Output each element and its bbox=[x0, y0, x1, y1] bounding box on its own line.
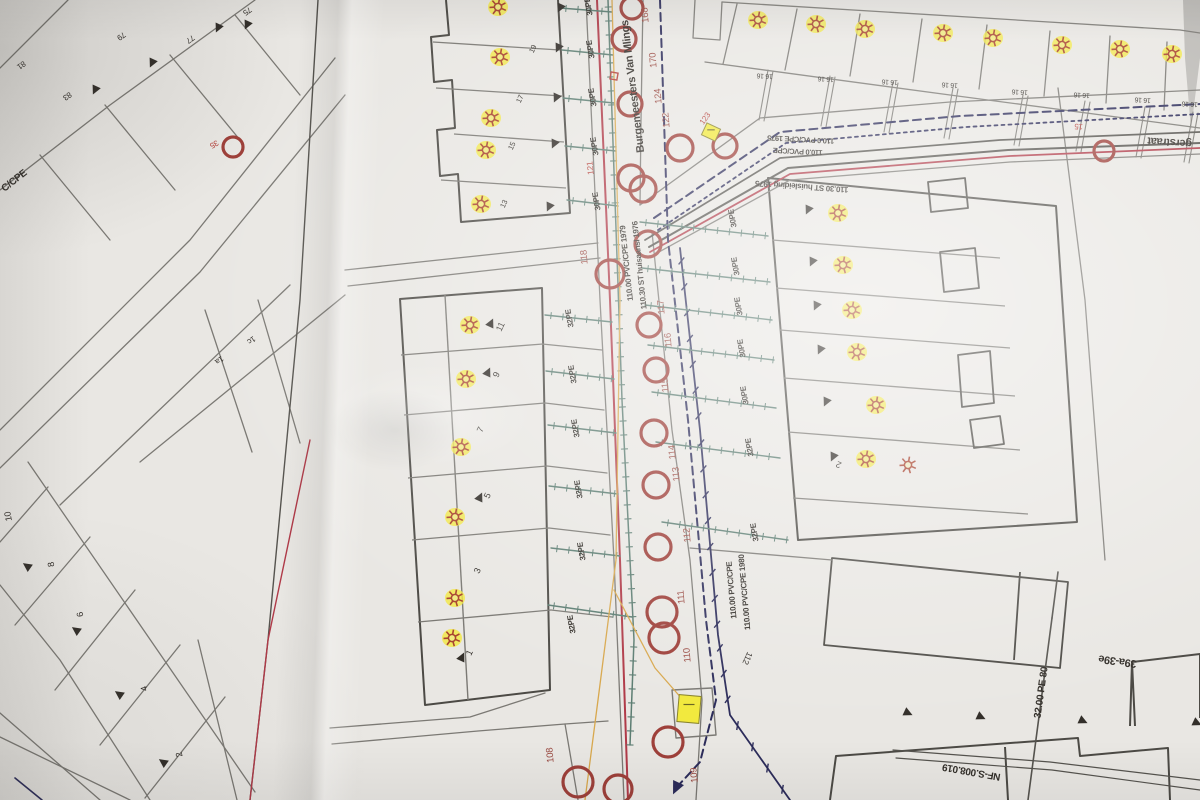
service-teal-tick bbox=[603, 51, 604, 58]
service-teal-tick bbox=[710, 309, 711, 316]
lamp-icon bbox=[912, 461, 916, 463]
entrance-triangle bbox=[550, 92, 562, 104]
parcel-line bbox=[542, 344, 602, 350]
service-teal-tick bbox=[592, 549, 593, 556]
pe-service-label: 30PE bbox=[726, 208, 738, 229]
lamp-icon bbox=[1063, 37, 1064, 41]
service-teal-tick bbox=[703, 524, 704, 531]
house-number: 4 bbox=[139, 685, 150, 692]
service-teal-tick bbox=[667, 519, 668, 526]
parcel-line bbox=[348, 258, 600, 286]
service-teal-tick bbox=[753, 402, 754, 409]
map-drawing: Burgemeesters Van Mlingsgerstraat110.00 … bbox=[0, 0, 1200, 800]
service-teal-tick bbox=[601, 428, 602, 435]
parcel-line bbox=[693, 0, 722, 40]
parcel-line bbox=[545, 403, 604, 410]
service-teal-tick bbox=[565, 604, 566, 611]
service-pair-label: 16 16 bbox=[1073, 90, 1090, 98]
cable-navy-dashed bbox=[654, 104, 1200, 218]
entrance-triangle bbox=[156, 755, 169, 768]
house-number: 113 bbox=[670, 467, 682, 482]
service-pair-label: 16 16 bbox=[756, 71, 773, 79]
lamp-icon bbox=[812, 20, 819, 27]
lamp-icon bbox=[909, 469, 910, 473]
parcel-line bbox=[330, 693, 545, 728]
service-teal-tick bbox=[767, 278, 768, 285]
lamp-icon bbox=[462, 375, 469, 382]
tree-circle bbox=[653, 727, 683, 757]
lamp-icon bbox=[759, 12, 760, 16]
service-teal-tick bbox=[705, 395, 706, 402]
service-teal-tick bbox=[769, 453, 770, 460]
parcel-line bbox=[0, 737, 130, 800]
lamp-icon bbox=[904, 461, 911, 468]
pe-service-label: 32PE bbox=[572, 479, 584, 500]
pipe-label: 110.00 PVC/CPE bbox=[724, 560, 738, 619]
entrance-triangle bbox=[543, 201, 555, 213]
house-number: 19 bbox=[527, 43, 538, 54]
service-teal-tick bbox=[589, 607, 590, 614]
service-teal-tick bbox=[648, 265, 649, 272]
lamp-icon bbox=[903, 468, 906, 472]
parcel-line bbox=[1106, 36, 1110, 103]
paper-edge-shadow bbox=[1183, 0, 1200, 130]
cable-navy-hatched-tick bbox=[752, 742, 754, 751]
lamp-icon bbox=[496, 53, 503, 60]
service-teal-tick bbox=[762, 533, 763, 540]
service-teal-tick bbox=[758, 315, 759, 322]
utility-map-photo: Burgemeesters Van Mlingsgerstraat110.00 … bbox=[0, 0, 1200, 800]
lamp-icon bbox=[456, 509, 457, 513]
lamp-icon bbox=[1121, 41, 1122, 45]
lamp-icon bbox=[848, 306, 855, 313]
service-teal-tick bbox=[786, 536, 787, 543]
service-teal-tick bbox=[602, 8, 603, 15]
house-number: 10 bbox=[2, 511, 14, 522]
service-teal-tick bbox=[679, 521, 680, 528]
service-teal-tick bbox=[601, 609, 602, 616]
entrance-triangle bbox=[1191, 717, 1200, 729]
service-teal-tick bbox=[574, 315, 575, 322]
pe-service-label: 32PE bbox=[566, 364, 578, 385]
service-teal-tick bbox=[598, 317, 599, 324]
house-number: 17 bbox=[514, 93, 525, 104]
house-number: 122 bbox=[660, 112, 672, 128]
service-teal-tick bbox=[569, 95, 570, 102]
parcel-number: 79 bbox=[115, 30, 128, 43]
lamp-icon bbox=[494, 3, 501, 10]
parcel-line bbox=[0, 95, 345, 468]
service-teal-tick bbox=[741, 230, 742, 237]
entrance-triangle bbox=[902, 707, 914, 719]
service-teal-tick bbox=[583, 144, 584, 151]
house-number: 15 bbox=[506, 140, 517, 151]
pipe-label: 110.0 PVC/CPE 1975 bbox=[767, 133, 834, 145]
service-teal-tick bbox=[606, 147, 607, 154]
service-teal-tick bbox=[749, 354, 750, 361]
service-drop-line bbox=[949, 89, 958, 139]
service-teal-tick bbox=[589, 426, 590, 433]
pe-service-label: 32PE bbox=[563, 308, 575, 329]
lamp-icon bbox=[867, 451, 868, 455]
lamp-icon bbox=[1173, 46, 1174, 50]
service-teal-tick bbox=[725, 351, 726, 358]
house-number: 170 bbox=[647, 52, 659, 68]
lamp-icon bbox=[1058, 41, 1065, 48]
service-teal-tick bbox=[611, 375, 612, 382]
parcel-line bbox=[198, 640, 237, 800]
service-teal bbox=[642, 268, 770, 282]
parcel-line bbox=[345, 243, 598, 270]
pe-service-label: 30PE bbox=[729, 256, 741, 277]
entrance-triangle bbox=[89, 84, 101, 96]
house-number: 9 bbox=[491, 370, 502, 379]
service-teal-tick bbox=[683, 269, 684, 276]
lamp-icon bbox=[839, 261, 846, 268]
tree-circle bbox=[641, 420, 667, 446]
pe-service-label: 32PE bbox=[748, 522, 760, 543]
house-number: 2 bbox=[834, 459, 843, 470]
service-teal-tick bbox=[551, 312, 552, 319]
lamp-icon bbox=[858, 344, 859, 348]
house-number: 3 bbox=[472, 566, 483, 575]
house-number: 117 bbox=[655, 300, 667, 315]
service-teal-tick bbox=[715, 526, 716, 533]
pipe-label: 32.00 PE 80 bbox=[1032, 666, 1050, 720]
parcel-line bbox=[0, 713, 100, 800]
lamp-icon bbox=[866, 21, 867, 25]
lamp-icon bbox=[1116, 45, 1123, 52]
house-number: 112 bbox=[681, 528, 693, 543]
house-number: 115 bbox=[659, 378, 671, 393]
house-number: 6 bbox=[75, 611, 86, 618]
entrance-triangle bbox=[552, 42, 564, 54]
service-teal-tick bbox=[553, 602, 554, 609]
service-teal-tick bbox=[739, 530, 740, 537]
service-teal-tick bbox=[587, 372, 588, 379]
lamp-icon bbox=[834, 209, 841, 216]
house-number: 168 bbox=[639, 7, 651, 23]
service-teal-tick bbox=[604, 551, 605, 558]
service-teal-tick bbox=[660, 266, 661, 273]
lamp-icon bbox=[909, 457, 910, 461]
service-teal-tick bbox=[654, 342, 655, 349]
pe-service-label: 30PE bbox=[732, 296, 744, 317]
pipe-label: 110.0 PVC/CPE bbox=[773, 146, 823, 158]
service-teal-tick bbox=[651, 302, 652, 309]
service-teal-tick bbox=[571, 143, 572, 150]
service-teal-tick bbox=[608, 201, 609, 208]
pipe-label: C/CPE bbox=[0, 167, 30, 194]
entrance-triangle bbox=[69, 623, 82, 636]
house-number: 13 bbox=[498, 198, 509, 209]
lamp-icon bbox=[466, 321, 473, 328]
service-teal-tick bbox=[717, 397, 718, 404]
lamp-icon bbox=[994, 30, 995, 34]
service-teal-tick bbox=[602, 489, 603, 496]
house-number: 116 bbox=[662, 333, 674, 348]
parcel-line bbox=[235, 15, 300, 95]
tree-circle bbox=[667, 135, 693, 161]
house-number: 114 bbox=[666, 445, 678, 460]
service-teal-tick bbox=[568, 547, 569, 554]
lamp-icon bbox=[872, 401, 879, 408]
parcel-line bbox=[55, 590, 135, 690]
cable-navy-hatched-tick bbox=[767, 764, 769, 773]
lamp-icon bbox=[989, 34, 996, 41]
lamp-icon bbox=[462, 439, 463, 443]
service-teal-tick bbox=[729, 399, 730, 406]
lamp-icon bbox=[754, 16, 761, 23]
house-number-red: 35 bbox=[208, 138, 220, 150]
pe80-pipe-line bbox=[1052, 572, 1058, 618]
rear-path-line bbox=[893, 750, 1200, 780]
house-number: 2 bbox=[174, 751, 185, 758]
tree-circle bbox=[563, 767, 593, 797]
lamp-icon bbox=[817, 16, 818, 20]
parcel-line bbox=[140, 295, 345, 462]
cable-navy-corner bbox=[15, 778, 42, 800]
service-teal-tick bbox=[613, 429, 614, 436]
tree-circle bbox=[637, 313, 661, 337]
parcel-line bbox=[547, 466, 607, 473]
lamp-icon bbox=[861, 25, 868, 32]
service-pair-label: 16 16 bbox=[1011, 87, 1028, 95]
service-teal-tick bbox=[563, 313, 564, 320]
lamp-icon bbox=[499, 0, 500, 3]
service-teal-tick bbox=[765, 403, 766, 410]
entrance-triangle bbox=[20, 559, 33, 572]
house-number-red: 121 bbox=[584, 161, 595, 176]
service-teal-tick bbox=[695, 270, 696, 277]
service-teal-tick bbox=[565, 424, 566, 431]
tree-circle bbox=[643, 472, 669, 498]
service-teal-tick bbox=[557, 545, 558, 552]
parcel-line bbox=[640, 90, 1200, 205]
parcel-line bbox=[15, 537, 90, 625]
entrance-triangle bbox=[814, 344, 826, 356]
service-teal-tick bbox=[578, 6, 579, 13]
plot-divider bbox=[401, 344, 551, 622]
service-teal-tick bbox=[693, 394, 694, 401]
house-number: 11 bbox=[494, 320, 507, 332]
lamp-icon bbox=[456, 590, 457, 594]
lamp-icon bbox=[477, 200, 484, 207]
crease-line bbox=[250, 0, 318, 800]
service-teal-tick bbox=[568, 47, 569, 54]
shed bbox=[928, 178, 1004, 448]
service-drop-line bbox=[1014, 95, 1023, 145]
house-number: 110 bbox=[681, 648, 693, 663]
service-teal-tick bbox=[761, 355, 762, 362]
service-teal-tick bbox=[773, 356, 774, 363]
entrance-triangle bbox=[975, 711, 987, 723]
parcel-line bbox=[40, 155, 110, 240]
service-pair-label: 16 16 bbox=[817, 74, 834, 82]
service-teal-tick bbox=[709, 445, 710, 452]
service-drop-line bbox=[889, 83, 898, 133]
pe-service-label: 32PE bbox=[575, 541, 587, 562]
pe-service-label: 30PE bbox=[590, 191, 602, 212]
service-teal-tick bbox=[733, 449, 734, 456]
lamp-icon bbox=[492, 110, 493, 114]
lamp-icon bbox=[862, 455, 869, 462]
house-number: 118 bbox=[578, 250, 590, 265]
service-teal-tick bbox=[717, 227, 718, 234]
service-teal-tick bbox=[658, 220, 659, 227]
service-teal-tick bbox=[722, 311, 723, 318]
service-teal-tick bbox=[707, 272, 708, 279]
service-teal-tick bbox=[677, 345, 678, 352]
service-teal-tick bbox=[573, 197, 574, 204]
lamp-icon bbox=[451, 513, 458, 520]
parcel-line bbox=[28, 462, 255, 792]
service-teal-tick bbox=[681, 392, 682, 399]
lamp-icon bbox=[453, 630, 454, 634]
service-teal-tick bbox=[693, 224, 694, 231]
service-teal-tick bbox=[552, 368, 553, 375]
cable-navy-hatched-tick bbox=[782, 785, 784, 794]
entrance-triangle bbox=[112, 687, 125, 700]
service-teal-tick bbox=[774, 535, 775, 542]
service-teal-tick bbox=[604, 99, 605, 106]
house-number-red: 123 bbox=[698, 110, 713, 126]
service-drop-line bbox=[944, 88, 953, 138]
service-teal bbox=[652, 392, 776, 408]
service-teal-tick bbox=[753, 231, 754, 238]
service-teal-tick bbox=[746, 313, 747, 320]
pe-service-label: 30PE bbox=[584, 39, 596, 60]
lamp-icon bbox=[912, 467, 916, 469]
parcel-line bbox=[170, 55, 240, 140]
tree-circle bbox=[223, 137, 243, 157]
parcel-line bbox=[205, 310, 252, 452]
house-number-red: 15 bbox=[1074, 122, 1084, 132]
parcel-line bbox=[145, 697, 225, 798]
lamp-icon bbox=[457, 443, 464, 450]
pe-service-label: 32PE bbox=[743, 437, 755, 458]
service-teal-tick bbox=[586, 316, 587, 323]
house-number: 111 bbox=[675, 590, 687, 604]
lamp-icon bbox=[939, 29, 946, 36]
entrance-triangle bbox=[827, 451, 839, 463]
lamp-icon bbox=[482, 146, 489, 153]
junction-box bbox=[677, 695, 701, 724]
service-drop-line bbox=[821, 76, 830, 126]
lamp-icon bbox=[501, 49, 502, 53]
service-teal-tick bbox=[613, 611, 614, 618]
lamp-icon bbox=[451, 594, 458, 601]
service-teal-tick bbox=[757, 452, 758, 459]
service-teal bbox=[545, 315, 612, 322]
service-teal-tick bbox=[755, 277, 756, 284]
service-teal-tick bbox=[625, 613, 626, 620]
house-number: 108 bbox=[544, 747, 556, 763]
lamp-icon bbox=[853, 302, 854, 306]
pipe-label: 110.00 PVC/CPE 1980 bbox=[737, 553, 753, 630]
service-pair-label: 16 16 bbox=[1181, 99, 1198, 107]
pe-service-label: 30PE bbox=[582, 0, 594, 16]
service-teal-tick bbox=[727, 528, 728, 535]
service-teal-tick bbox=[581, 96, 582, 103]
parcel-line bbox=[60, 285, 290, 505]
tree-circle bbox=[645, 534, 671, 560]
parcel-line bbox=[0, 0, 68, 68]
cable-navy-hatched-tick bbox=[737, 721, 739, 730]
lamp-icon bbox=[471, 317, 472, 321]
service-teal-tick bbox=[614, 490, 615, 497]
parcel-line bbox=[1044, 31, 1050, 96]
service-teal-tick bbox=[701, 348, 702, 355]
service-teal-tick bbox=[577, 606, 578, 613]
service-teal-tick bbox=[719, 273, 720, 280]
block-number: 39a-39e bbox=[1098, 652, 1138, 669]
lamp-icon bbox=[839, 205, 840, 209]
service-teal-tick bbox=[698, 308, 699, 315]
parcel-line bbox=[549, 528, 610, 535]
service-drop-line bbox=[826, 77, 835, 127]
crease-crimson bbox=[250, 440, 310, 800]
cable-navy-dotted bbox=[658, 114, 1200, 230]
parcel-line bbox=[565, 724, 578, 800]
service-teal-tick bbox=[563, 370, 564, 377]
lamp-icon bbox=[487, 142, 488, 146]
parcel-line bbox=[785, 9, 797, 70]
house-number: 112 bbox=[740, 650, 755, 666]
service-teal-tick bbox=[590, 487, 591, 494]
service-teal-tick bbox=[555, 483, 556, 490]
building-bottom-center bbox=[824, 558, 1068, 668]
lamp-icon bbox=[482, 196, 483, 200]
service-teal-tick bbox=[554, 422, 555, 429]
parcel-number: 81 bbox=[15, 59, 28, 72]
lamp-icon bbox=[844, 257, 845, 261]
lamp-icon bbox=[487, 114, 494, 121]
parcel-line bbox=[913, 19, 922, 82]
house-number: 8 bbox=[46, 561, 57, 568]
lamp-icon bbox=[902, 459, 905, 462]
house-number: 5 bbox=[482, 491, 493, 500]
pe-service-label: 32PE bbox=[565, 614, 577, 635]
entrance-triangle bbox=[820, 396, 832, 408]
plot-divider bbox=[772, 240, 1028, 514]
service-teal-tick bbox=[689, 346, 690, 353]
lamp-icon bbox=[448, 634, 455, 641]
service-teal-tick bbox=[646, 219, 647, 226]
parcel-number: 1c bbox=[245, 334, 257, 346]
building-bottom-right bbox=[830, 654, 1200, 800]
parcel-number: 75 bbox=[241, 5, 254, 18]
entrance-triangle bbox=[806, 256, 818, 268]
street-name-gerstraat: gerstraat bbox=[1147, 134, 1193, 149]
service-teal-tick bbox=[685, 442, 686, 449]
lamp-icon bbox=[467, 371, 468, 375]
row-houses-right bbox=[768, 178, 1077, 540]
service-teal-tick bbox=[721, 447, 722, 454]
entrance-triangle bbox=[146, 57, 158, 69]
row-houses-left bbox=[400, 288, 550, 705]
service-teal-tick bbox=[566, 5, 567, 12]
house-number: 124 bbox=[652, 88, 664, 104]
service-teal-tick bbox=[566, 485, 567, 492]
pe-service-label: 30PE bbox=[586, 87, 598, 108]
pe-service-label: 30PE bbox=[588, 136, 600, 157]
lamp-icon bbox=[877, 397, 878, 401]
pe-service-label: 30PE bbox=[738, 385, 750, 406]
parcel-number: 83 bbox=[61, 90, 74, 103]
row-houses-top bbox=[431, 0, 570, 222]
service-teal-tick bbox=[765, 232, 766, 239]
